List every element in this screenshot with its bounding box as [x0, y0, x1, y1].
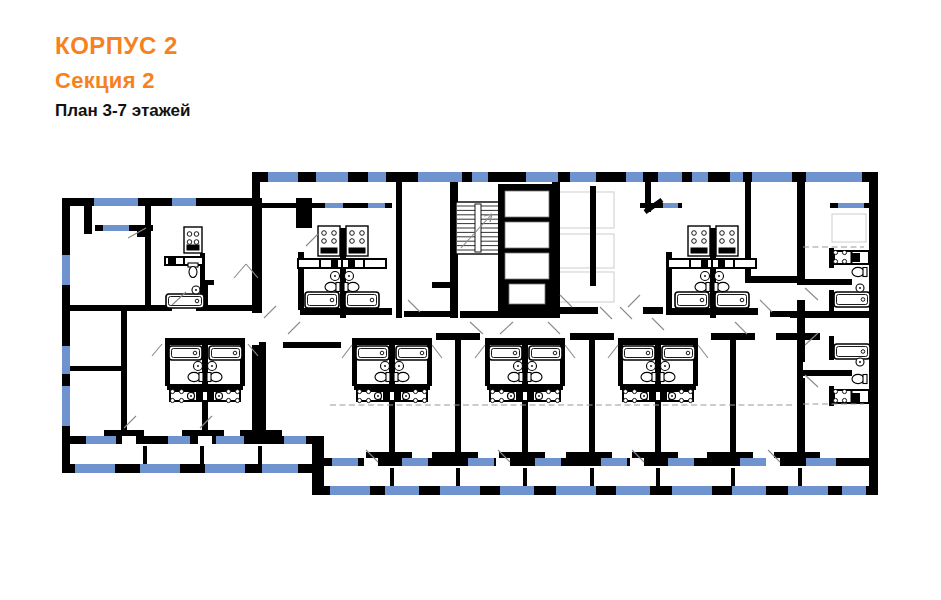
- sink-icon: [536, 393, 543, 400]
- sink-icon: [641, 393, 648, 400]
- sink-icon: [216, 393, 223, 400]
- sink-icon: [528, 362, 537, 371]
- furniture-hint: [558, 192, 614, 228]
- wall-segment: [137, 225, 147, 237]
- window-segment: [284, 436, 306, 444]
- wall-segment: [460, 311, 500, 318]
- wall-segment: [527, 392, 534, 400]
- toilet-icon: [188, 263, 198, 278]
- bathtub-icon: [715, 292, 749, 308]
- wall-segment: [258, 446, 262, 464]
- window-segment: [732, 486, 766, 495]
- wall-segment: [731, 468, 735, 486]
- sink-icon: [192, 286, 200, 294]
- door-swing-line: [470, 322, 483, 334]
- stove-icon: [318, 226, 340, 256]
- bathtub-icon: [396, 346, 429, 360]
- door-swing-line: [288, 322, 300, 334]
- sink-icon: [514, 362, 523, 371]
- door-swing-line: [735, 322, 747, 334]
- window-segment: [94, 198, 138, 206]
- page: КОРПУС 2 Секция 2 План 3-7 этажей: [0, 0, 941, 600]
- window-segment: [740, 458, 766, 466]
- sink-icon: [508, 393, 515, 400]
- wall-segment: [331, 260, 338, 267]
- bathtub-icon: [529, 346, 562, 360]
- window-segment: [368, 172, 386, 182]
- window-segment: [752, 172, 792, 182]
- window-segment: [62, 346, 70, 374]
- window-segment: [535, 458, 561, 466]
- wall-segment: [207, 392, 214, 400]
- window-segment: [692, 172, 708, 182]
- door-swing-line: [805, 288, 818, 300]
- building-title: КОРПУС 2: [55, 34, 190, 58]
- wall-segment: [718, 260, 725, 267]
- wall-segment: [660, 392, 667, 400]
- stove-icon: [716, 226, 738, 256]
- wall-segment: [666, 308, 758, 315]
- wall-segment: [200, 446, 204, 464]
- window-segment: [86, 436, 116, 444]
- window-segment: [672, 486, 712, 495]
- wall-segment: [62, 198, 70, 472]
- bathtub-icon: [662, 346, 695, 360]
- window-segment: [62, 386, 70, 426]
- window-segment: [663, 203, 678, 208]
- sink-icon: [208, 362, 217, 371]
- bathtub-icon: [834, 344, 870, 359]
- wall-segment: [396, 172, 402, 318]
- wall-segment: [167, 384, 243, 390]
- wall-segment: [383, 392, 390, 400]
- toilet-icon: [641, 372, 656, 381]
- wall-segment: [455, 333, 461, 462]
- toilet-icon: [188, 372, 203, 381]
- bathtub-icon: [166, 294, 204, 308]
- window-segment: [730, 172, 743, 182]
- kitchen-counter-icon: [833, 250, 870, 265]
- window-segment: [268, 172, 298, 182]
- window-segment: [601, 458, 627, 466]
- door-swing-line: [432, 345, 442, 358]
- door-swing-line: [500, 322, 513, 334]
- window-segment: [330, 486, 370, 495]
- window-segment: [385, 486, 419, 495]
- wall-segment: [558, 307, 598, 314]
- wall-segment: [145, 205, 151, 307]
- window-segment: [262, 464, 298, 473]
- kitchen-counter-icon: [833, 389, 870, 404]
- wall-segment: [516, 392, 523, 400]
- window-segment: [788, 486, 828, 495]
- stove-icon: [346, 226, 368, 256]
- wall-segment: [797, 279, 852, 285]
- wall-segment: [84, 198, 92, 234]
- wall-segment: [252, 198, 262, 313]
- door-swing-line: [698, 345, 708, 358]
- door-swing-line: [408, 300, 420, 312]
- wall-segment: [649, 392, 656, 400]
- bathtub-icon: [489, 346, 522, 360]
- window-segment: [472, 172, 488, 182]
- sink-icon: [403, 393, 410, 400]
- wall-segment: [354, 384, 430, 390]
- wall-opening: [198, 436, 212, 444]
- window-segment: [468, 458, 494, 466]
- window-segment: [402, 458, 428, 466]
- bathtub-icon: [622, 346, 655, 360]
- window-segment: [325, 203, 343, 208]
- door-swing-line: [565, 345, 575, 358]
- elevator-shaft-icon: [498, 184, 560, 318]
- window-segment: [842, 486, 866, 495]
- bathtub-icon: [834, 292, 870, 307]
- bathtub-icon: [345, 292, 379, 308]
- window-segment: [332, 458, 358, 466]
- wall-segment: [656, 468, 660, 486]
- wall-segment: [869, 172, 878, 495]
- sink-icon: [331, 272, 340, 281]
- wall-segment: [168, 258, 176, 264]
- window-segment: [806, 172, 862, 182]
- sink-icon: [194, 362, 203, 371]
- wall-segment: [196, 392, 203, 400]
- door-swing-line: [600, 307, 612, 319]
- wall-segment: [589, 333, 595, 462]
- wall-segment: [300, 308, 392, 315]
- window-segment: [570, 172, 596, 182]
- door-swing-line: [475, 345, 485, 358]
- door-swing-line: [548, 322, 560, 334]
- sink-icon: [188, 393, 195, 400]
- toilet-icon: [508, 372, 523, 381]
- wall-segment: [798, 468, 802, 486]
- bathtub-icon: [169, 346, 202, 360]
- sink-icon: [375, 393, 382, 400]
- sink-icon: [669, 393, 676, 400]
- kitchen-counter-icon: [297, 258, 387, 269]
- furniture-hint: [558, 234, 614, 268]
- wall-opening: [122, 436, 136, 444]
- wall-segment: [348, 260, 355, 267]
- bathtub-icon: [675, 292, 709, 308]
- toilet-icon: [527, 372, 542, 381]
- wall-segment: [456, 468, 460, 486]
- toilet-icon: [714, 282, 729, 291]
- window-segment: [168, 436, 190, 444]
- title-block: КОРПУС 2 Секция 2 План 3-7 этажей: [55, 34, 190, 119]
- window-segment: [658, 172, 682, 182]
- window-segment: [140, 464, 180, 473]
- window-segment: [316, 172, 348, 182]
- door-swing-line: [805, 375, 818, 387]
- sink-icon: [661, 362, 670, 371]
- toilet-icon: [375, 372, 390, 381]
- door-swing-line: [234, 264, 246, 278]
- toilet-icon: [852, 267, 867, 276]
- sink-icon: [701, 272, 710, 281]
- sink-icon: [395, 362, 404, 371]
- wall-segment: [240, 430, 282, 438]
- door-swing-line: [608, 345, 618, 358]
- sink-icon: [381, 362, 390, 371]
- bathtub-icon: [356, 346, 389, 360]
- wall-segment: [701, 260, 708, 267]
- stove-icon: [184, 227, 202, 253]
- sink-icon: [345, 272, 354, 281]
- door-swing-line: [628, 295, 640, 307]
- wall-segment: [62, 305, 172, 311]
- window-segment: [172, 198, 196, 206]
- window-segment: [500, 486, 534, 495]
- window-segment: [216, 436, 244, 444]
- wall-segment: [730, 333, 736, 462]
- toilet-icon: [660, 372, 675, 381]
- window-segment: [62, 255, 70, 285]
- wall-segment: [745, 276, 801, 283]
- toilet-icon: [207, 372, 222, 381]
- wall-segment: [283, 342, 341, 348]
- window-segment: [526, 172, 558, 182]
- window-segment: [75, 464, 115, 473]
- window-segment: [418, 172, 462, 182]
- toilet-icon: [695, 282, 710, 291]
- wall-segment: [590, 186, 596, 286]
- bathtub-icon: [305, 292, 339, 308]
- window-segment: [806, 458, 836, 466]
- wall-segment: [259, 342, 266, 438]
- wall-segment: [852, 253, 860, 262]
- toilet-icon: [394, 372, 409, 381]
- wall-segment: [620, 384, 696, 390]
- stove-icon: [688, 226, 710, 256]
- wall-segment: [852, 393, 860, 402]
- sink-icon: [856, 284, 864, 292]
- wall-segment: [523, 468, 527, 486]
- wall-segment: [487, 384, 563, 390]
- window-segment: [668, 458, 694, 466]
- wall-segment: [394, 392, 401, 400]
- toilet-icon: [344, 282, 359, 291]
- wall-segment: [643, 307, 663, 314]
- wall-segment: [121, 311, 127, 438]
- kitchen-counter-icon: [667, 258, 757, 269]
- window-segment: [103, 225, 129, 231]
- window-segment: [205, 464, 245, 473]
- door-swing-line: [560, 295, 572, 307]
- door-swing-line: [306, 234, 318, 246]
- window-segment: [616, 486, 650, 495]
- door-swing-line: [620, 307, 632, 319]
- window-segment: [440, 486, 480, 495]
- wall-segment: [797, 172, 805, 284]
- sink-icon: [715, 272, 724, 281]
- plan-subtitle: План 3-7 этажей: [55, 102, 190, 119]
- wall-segment: [590, 468, 594, 486]
- section-title: Секция 2: [55, 70, 190, 92]
- door-swing-line: [760, 300, 772, 312]
- wall-segment: [404, 311, 452, 317]
- sink-icon: [647, 362, 656, 371]
- wall-segment: [296, 198, 312, 228]
- door-swing-line: [264, 306, 276, 318]
- sink-icon: [856, 358, 864, 366]
- door-swing-line: [342, 345, 352, 358]
- window-segment: [838, 203, 864, 208]
- wall-segment: [770, 311, 798, 317]
- wall-segment: [390, 468, 394, 486]
- toilet-icon: [325, 282, 340, 291]
- furniture-hint: [832, 214, 866, 242]
- wall-segment: [143, 446, 147, 464]
- window-segment: [368, 203, 385, 208]
- toilet-icon: [852, 374, 867, 383]
- wall-segment: [797, 333, 803, 462]
- wall-segment: [62, 366, 122, 371]
- bathtub-icon: [209, 346, 242, 360]
- door-swing-line: [152, 344, 162, 356]
- door-swing-line: [652, 318, 664, 330]
- window-segment: [556, 486, 596, 495]
- window-segment: [626, 172, 643, 182]
- furniture-hint: [558, 272, 614, 302]
